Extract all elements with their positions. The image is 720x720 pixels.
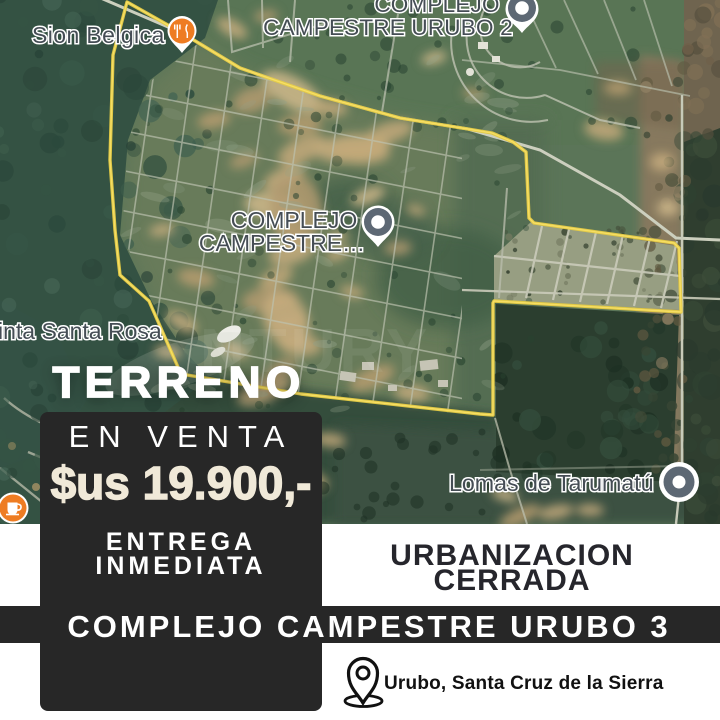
svg-text:CAMPESTRE URUBO 2: CAMPESTRE URUBO 2 — [263, 15, 513, 40]
svg-text:inta Santa Rosa: inta Santa Rosa — [0, 318, 162, 344]
svg-text:CAMPESTRE…: CAMPESTRE… — [199, 230, 365, 256]
svg-text:Lomas de Tarumatú: Lomas de Tarumatú — [449, 470, 654, 496]
svg-text:Sion Belgica: Sion Belgica — [32, 22, 165, 48]
